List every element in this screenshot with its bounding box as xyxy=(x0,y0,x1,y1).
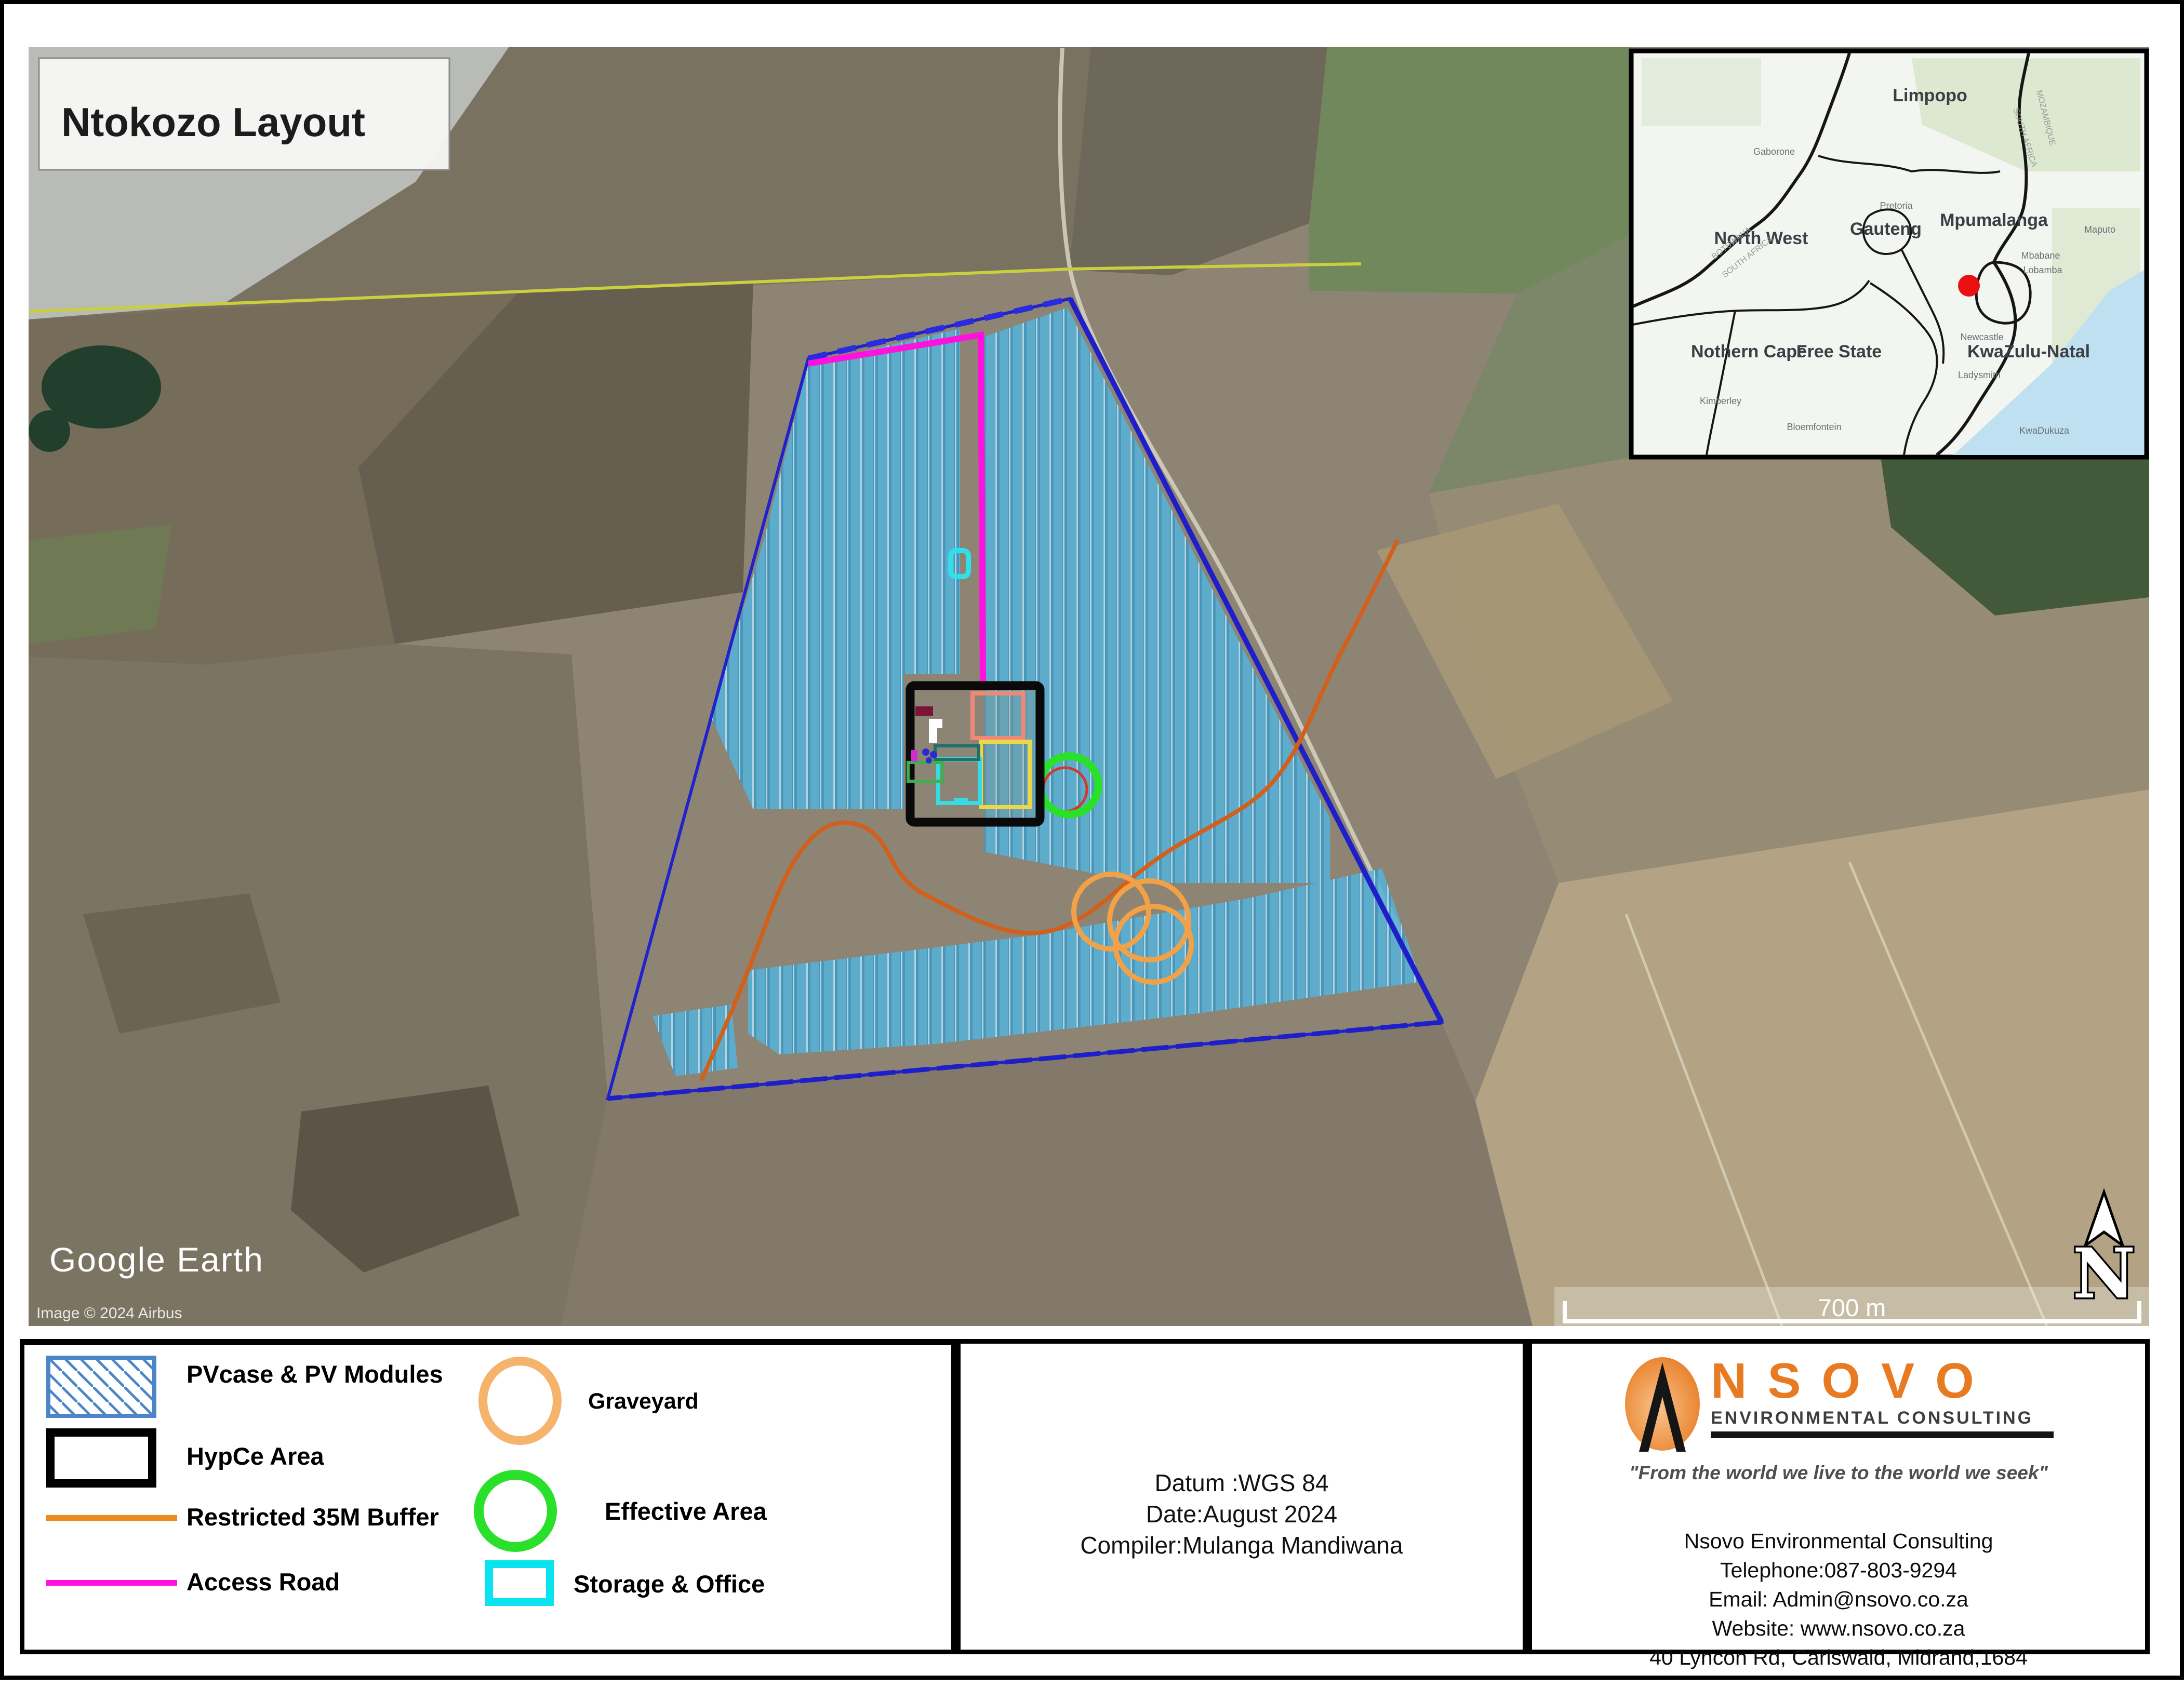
legend-label-buffer: Restricted 35M Buffer xyxy=(187,1503,439,1531)
company-telephone: Telephone:087-803-9294 xyxy=(1532,1556,2145,1585)
north-label: N xyxy=(2073,1234,2136,1314)
inset-province-label: Limpopo xyxy=(1893,86,1967,105)
compound-blue-dot xyxy=(926,757,932,764)
inset-city-label: Ladysmith xyxy=(1958,370,2001,380)
compound-blue-dot xyxy=(922,748,929,756)
legend-swatch-hypce xyxy=(46,1428,156,1488)
company-panel: NSOVO ENVIRONMENTAL CONSULTING "From the… xyxy=(1527,1339,2150,1654)
inset-province-label: Nothern Cape xyxy=(1691,342,1807,361)
legend-label-storage-office: Storage & Office xyxy=(574,1570,765,1598)
nsovo-logo-bar xyxy=(1711,1431,2054,1438)
inset-city-label: KwaDukuza xyxy=(2019,425,2070,436)
metadata-datum: Datum :WGS 84 xyxy=(961,1467,1523,1498)
field-patch xyxy=(1309,47,1633,293)
company-address: 40 Lyncon Rd, Carlswald, Midrand,1684 xyxy=(1532,1643,2145,1672)
inset-city-label: Gaborone xyxy=(1753,146,1795,157)
legend-label-hypce: HypCe Area xyxy=(187,1442,324,1470)
metadata-block: Datum :WGS 84 Date:August 2024 Compiler:… xyxy=(961,1467,1523,1561)
metadata-date: Date:August 2024 xyxy=(961,1498,1523,1530)
company-website: Website: www.nsovo.co.za xyxy=(1532,1614,2145,1643)
metadata-panel: Datum :WGS 84 Date:August 2024 Compiler:… xyxy=(956,1339,1527,1654)
compound-blue-dot xyxy=(930,751,937,758)
legend-swatch-graveyard xyxy=(478,1357,562,1445)
inset-city-label: Maputo xyxy=(2084,224,2115,235)
nsovo-wordmark: NSOVO xyxy=(1711,1355,1995,1407)
satellite-map: Ntokozo Layout Google Earth Image © 2024… xyxy=(29,47,2149,1326)
legend-swatch-pv-modules xyxy=(46,1356,156,1418)
legend-label-effective-area: Effective Area xyxy=(605,1497,767,1525)
legend-swatch-storage-office xyxy=(485,1560,554,1606)
company-contact-block: Nsovo Environmental Consulting Telephone… xyxy=(1532,1527,2145,1672)
imagery-attribution: Image © 2024 Airbus xyxy=(36,1305,182,1322)
nsovo-logo: NSOVO ENVIRONMENTAL CONSULTING xyxy=(1623,1355,2054,1453)
page-title: Ntokozo Layout xyxy=(61,99,365,145)
scale-label: 700 m xyxy=(1818,1294,1886,1321)
company-email: Email: Admin@nsovo.co.za xyxy=(1532,1585,2145,1614)
compound-maroon-structure xyxy=(915,706,933,716)
inset-location-marker xyxy=(1958,275,1980,297)
field-patch xyxy=(29,525,171,644)
nsovo-subtitle: ENVIRONMENTAL CONSULTING xyxy=(1711,1408,2033,1428)
map-canvas: Ntokozo Layout Google Earth Image © 2024… xyxy=(29,47,2149,1326)
pond xyxy=(29,410,70,452)
nsovo-logo-mark-icon xyxy=(1623,1355,1701,1453)
legend-swatch-buffer xyxy=(46,1515,177,1521)
legend-label-pv-modules: PVcase & PV Modules xyxy=(187,1360,443,1388)
scale-bar: 700 m xyxy=(1554,1287,2149,1326)
inset-city-label: Mbabane xyxy=(2021,250,2060,261)
legend-panel: PVcase & PV Modules HypCe Area Restricte… xyxy=(20,1339,956,1654)
inset-province-label: KwaZulu-Natal xyxy=(1967,342,2090,361)
legend-label-access-road: Access Road xyxy=(187,1568,340,1596)
compound-storage-door xyxy=(954,798,968,805)
company-inner: NSOVO ENVIRONMENTAL CONSULTING "From the… xyxy=(1532,1344,2145,1650)
inset-province-label: Gauteng xyxy=(1850,219,1922,239)
inset-province-label: Mpumalanga xyxy=(1940,210,2048,230)
inset-city-label: Kimberley xyxy=(1700,396,1741,406)
inset-city-label: Bloemfontein xyxy=(1787,422,1841,432)
map-sheet: Ntokozo Layout Google Earth Image © 2024… xyxy=(0,0,2184,1687)
company-name: Nsovo Environmental Consulting xyxy=(1532,1527,2145,1556)
inset-map: Limpopo North West Gauteng Mpumalanga No… xyxy=(1631,51,2147,457)
company-tagline: "From the world we live to the world we … xyxy=(1629,1462,2048,1484)
legend-label-graveyard: Graveyard xyxy=(588,1389,699,1414)
compound-magenta-structure xyxy=(911,750,917,761)
nsovo-logo-text: NSOVO ENVIRONMENTAL CONSULTING xyxy=(1711,1355,2054,1438)
legend-swatch-access-road xyxy=(46,1580,177,1586)
inset-city-label: Pretoria xyxy=(1880,200,1913,211)
hypce-area xyxy=(908,686,1040,822)
metadata-compiler: Compiler:Mulanga Mandiwana xyxy=(961,1530,1523,1561)
inset-green-patch xyxy=(1642,58,1761,126)
legend-swatch-effective-area xyxy=(474,1470,557,1552)
inset-province-label: Free State xyxy=(1796,342,1882,361)
inset-city-label: Lobamba xyxy=(2023,265,2062,275)
google-earth-logo: Google Earth xyxy=(49,1240,264,1279)
inset-city-label: Newcastle xyxy=(1960,332,2003,342)
map-title-box: Ntokozo Layout xyxy=(39,58,449,170)
